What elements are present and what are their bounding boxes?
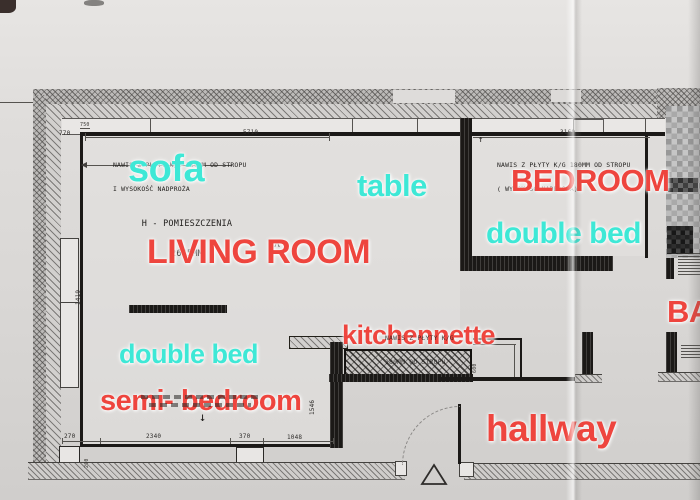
bath-wall-stub-left [575,374,602,383]
kitchen-wall-vertical [330,342,343,448]
dim-line-living-top [85,137,329,138]
lintel-divider [417,118,418,133]
dim-line-bedroom-top [473,137,650,138]
top-smudge [84,0,104,6]
dim-tick [62,438,63,444]
dim-tick [85,133,86,141]
illegible-text-upper [678,253,700,277]
floorplan-photo: 5710 3160 770 750 270 2340 370 1048 1546… [0,0,700,500]
label-semi-bedroom: semi- bedroom [100,385,301,418]
wall-top-patch-1 [393,90,455,103]
corner-mark [0,0,16,13]
lintel-divider [645,118,646,133]
note-kitchen-overhang: NAWIS Z PŁYTY K/G 180MM OD STROPU [385,318,454,382]
dim-label-770: 770 [59,130,70,137]
dim-label-right-vertical: 1546 [309,400,316,415]
dim-label-bottom-2: 2340 [146,433,161,440]
label-living-room: LIVING ROOM [147,233,370,272]
window-left-lower [60,302,79,388]
hallway-wall-line [440,377,584,381]
dim-tick [329,133,330,141]
note-kitchen-overhang-line2: 180MM OD STROPU [385,358,454,366]
illegible-struck-text-row1 [141,395,259,399]
lintel-divider [352,118,353,133]
note-arrowhead [81,162,87,168]
note-kitchen-overhang-line1: NAWIS Z PŁYTY K/G [385,334,454,342]
bath-wall-stub-right [658,372,700,382]
dim-tick [333,438,334,444]
illegible-text-lower [681,345,700,360]
recess-line-right-inner [514,344,515,380]
label-double-bed-bedroom: double bed [486,217,641,251]
door-swing-triangle-symbol [420,463,448,486]
dim-label-recess-width: 600 [472,363,478,373]
label-bedroom: BEDROOM [511,163,669,199]
dim-extension-770 [0,102,33,103]
bath-door-frame-left [582,332,593,378]
dim-label-living-top: 5710 [243,129,258,136]
dim-label-window-depth: 200 [84,458,90,468]
dim-tick [263,438,264,444]
room-height-line1: H - POMIESZCZENIA [128,219,246,229]
wall-left-inner [46,105,61,467]
dim-label-bottom-1: 270 [64,433,75,440]
lintel-divider [150,118,151,133]
partition-bar [129,305,227,313]
wall-left-outer [33,95,46,467]
label-double-bed-living: double bed [119,339,258,370]
dim-label-bedroom-top: 3160 [560,129,575,136]
label-bathroom-partial: BA [667,294,700,330]
label-sofa: sofa [128,148,204,191]
bedroom-wall-left [460,118,472,271]
wall-bottom-right-band [464,463,700,480]
dim-tick [100,438,101,444]
wall-top-outer [33,89,700,104]
censored-dark-1 [668,178,698,192]
up-arrow-symbol: ↑ [478,135,484,145]
recess-line-right [520,338,522,380]
illegible-struck-text-row2 [149,403,251,407]
wall-top-inner [43,104,665,118]
dim-tick [230,438,231,444]
dim-line-bottom [62,441,333,442]
dim-label-bottom-3: 370 [239,433,250,440]
door-jamb-right [459,462,474,477]
dim-label-bottom-4: 1048 [287,434,302,441]
censored-dark-2 [667,226,693,254]
door-swing-arc [402,406,460,465]
label-hallway: hallway [486,408,616,450]
dim-label-left-vertical: 1419 [75,290,82,305]
dim-label-750: 750 [80,122,90,129]
wall-top-patch-2 [551,90,581,102]
bedroom-wall-bottom [460,256,613,271]
label-table: table [357,168,427,204]
